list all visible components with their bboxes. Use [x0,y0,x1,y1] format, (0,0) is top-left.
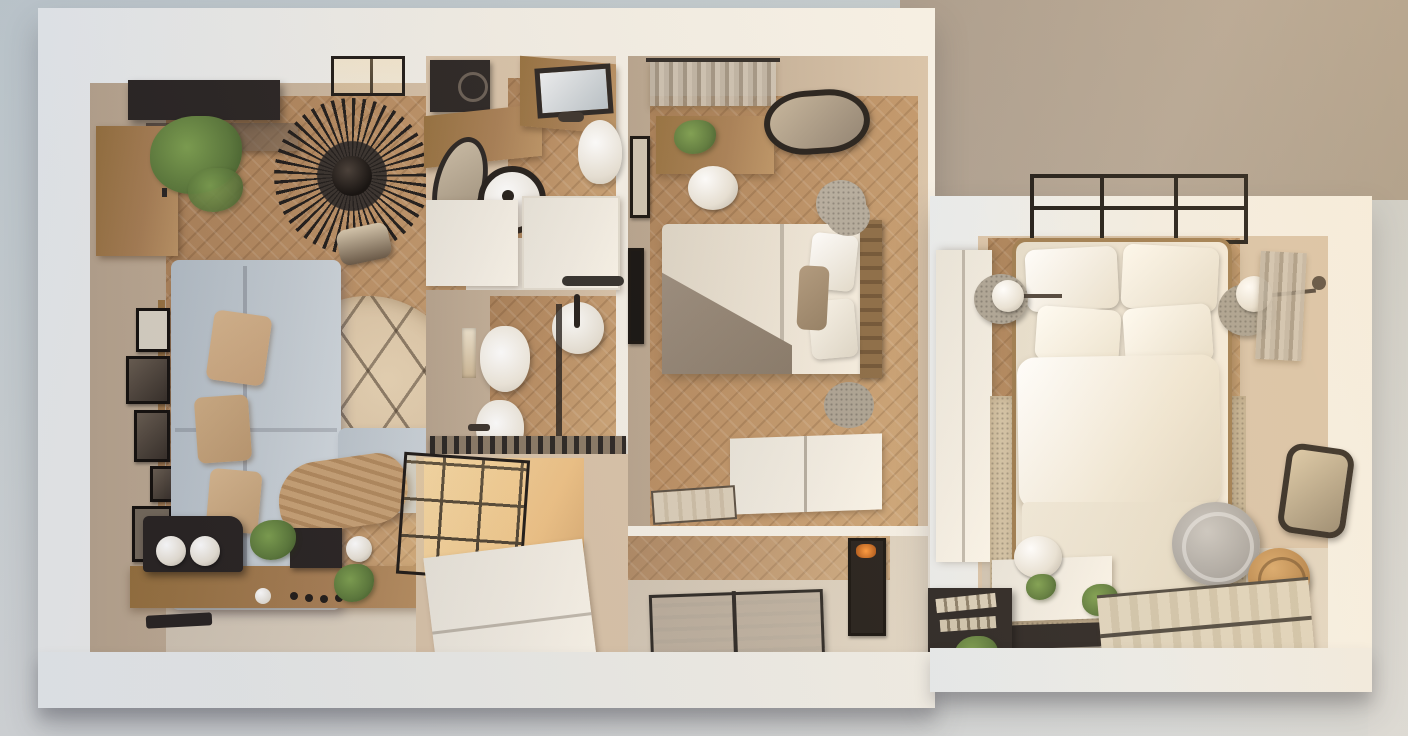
laptop [1004,622,1103,649]
white-dresser [730,433,882,514]
gallery-frame [126,356,170,404]
wall-tv [628,248,644,344]
lamp-arm-left [1022,294,1062,298]
white-cabinet-left [426,200,518,286]
shelf-books [940,616,997,632]
sphere-lamp-left [992,280,1024,312]
pendant-lamp [190,536,220,566]
canopy-bar [1034,206,1244,210]
annex-front-wall [930,648,1372,692]
basin-faucet [574,294,580,328]
side-table-top [826,196,870,236]
pendant-lamp [156,536,186,566]
kitchen-knob-large [255,588,271,604]
wall-curtain [1255,251,1307,361]
main-unit-shell [38,8,935,708]
gallery-frame [136,308,170,352]
dresser-seam [804,436,807,512]
annex-unit-shell [930,196,1372,692]
glass-divider [556,304,562,452]
duvet [1017,354,1222,510]
backdrop-wall-right [1368,200,1408,736]
runner-center-stripe [1100,616,1312,638]
side-table-bottom [824,382,874,428]
door-handle [162,188,167,197]
cabinet-seam [432,612,591,634]
art-glow [856,544,876,558]
desk-chair-2 [1014,536,1062,578]
bed-bolster [796,265,829,330]
metal-grate-shelf [430,436,626,454]
toilet [480,326,530,392]
desk-chair [688,166,738,210]
curtain-rod [646,58,780,62]
canopy-strut [1174,178,1178,240]
lamp-counterweight [1312,276,1326,290]
kitchen-knob [320,595,328,603]
framed-art [848,538,886,636]
gallery-frame [134,410,170,462]
lounge-chair [1172,502,1260,586]
sofa-cushion [194,394,252,464]
lounge-chair-cushion [1182,512,1254,582]
washing-machine [430,60,490,112]
main-front-wall [38,652,935,708]
apartment-render [0,0,1408,736]
sofa-cushion [205,309,272,386]
media-console [128,80,280,120]
shelf-books [935,593,996,613]
vanity-faucet [558,112,584,122]
skylight-window [331,56,405,96]
wall-frame [630,136,650,218]
kitchen-knob [305,594,313,602]
rounded-mirror [1276,442,1356,541]
door-mat [651,485,737,525]
wall-niche [462,328,476,378]
bed2-pillow [1024,246,1119,313]
counter-sphere-lamp [346,536,372,562]
headboard [860,220,882,378]
window-curtain [650,60,776,106]
wardrobe-seam [962,250,965,562]
cooktop [290,528,342,568]
bidet-faucet [468,424,490,431]
washer-door [458,72,488,102]
pendant-hub [332,156,372,196]
kitchen-knob [290,592,298,600]
canopy-frame [1030,174,1248,244]
vanity-sink [534,63,613,118]
towel-rail [562,276,624,286]
bed2-pillow [1120,244,1219,313]
toilet-upper [578,120,622,184]
canopy-strut [1100,178,1104,240]
